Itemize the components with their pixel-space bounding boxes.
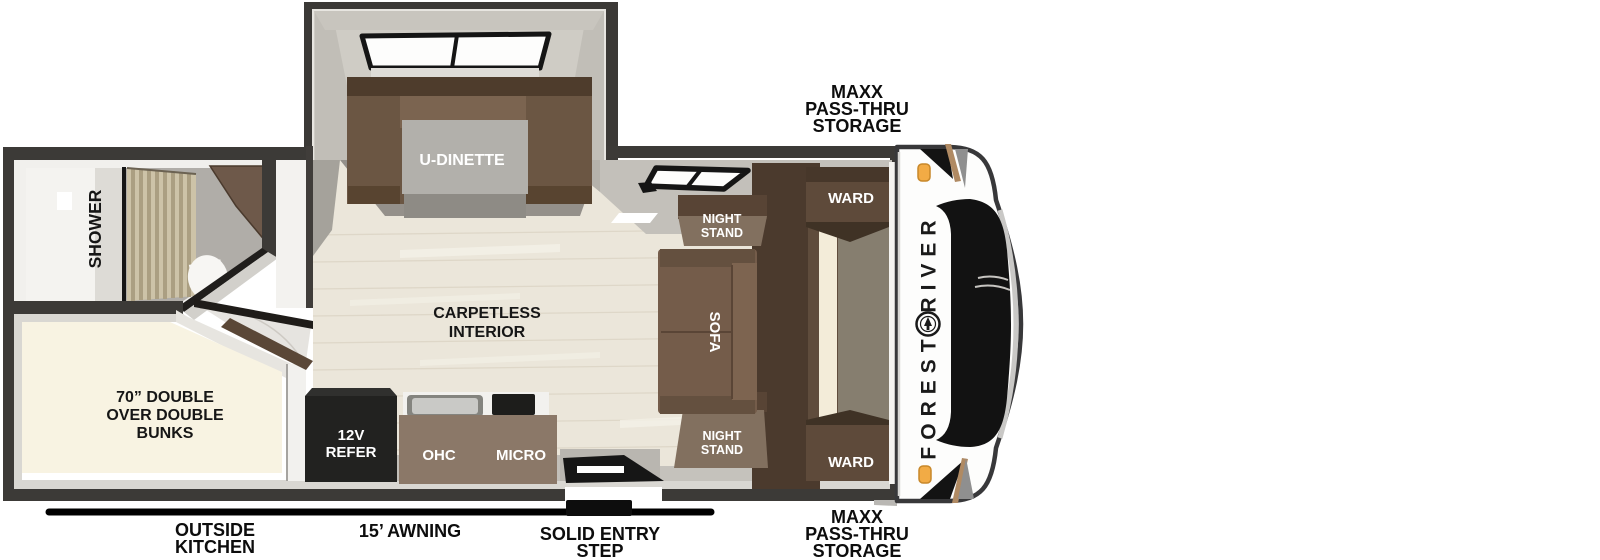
svg-text:INTERIOR: INTERIOR [449, 324, 526, 341]
svg-text:NIGHT: NIGHT [703, 212, 742, 226]
svg-text:STAND: STAND [701, 443, 743, 457]
svg-text:RIVER: RIVER [918, 213, 941, 312]
svg-text:WARD: WARD [828, 190, 874, 207]
svg-text:REFER: REFER [326, 444, 377, 461]
svg-text:STORAGE: STORAGE [813, 541, 902, 560]
svg-text:OVER DOUBLE: OVER DOUBLE [106, 407, 224, 424]
svg-text:MICRO: MICRO [496, 447, 546, 464]
svg-text:CARPETLESS: CARPETLESS [433, 305, 541, 322]
svg-text:70” DOUBLE: 70” DOUBLE [116, 389, 214, 406]
svg-text:WARD: WARD [828, 454, 874, 471]
svg-text:BUNKS: BUNKS [137, 425, 194, 442]
svg-text:STORAGE: STORAGE [813, 116, 902, 136]
svg-text:12V: 12V [338, 427, 365, 444]
svg-text:KITCHEN: KITCHEN [175, 537, 255, 557]
svg-text:SHOWER: SHOWER [85, 189, 105, 268]
svg-text:STAND: STAND [701, 226, 743, 240]
svg-text:U-DINETTE: U-DINETTE [419, 152, 505, 169]
svg-text:STEP: STEP [576, 541, 623, 560]
svg-text:OHC: OHC [422, 447, 456, 464]
svg-text:SOFA: SOFA [706, 312, 723, 353]
svg-text:15’ AWNING: 15’ AWNING [359, 521, 461, 541]
svg-text:NIGHT: NIGHT [703, 429, 742, 443]
svg-text:FOREST: FOREST [918, 332, 941, 459]
